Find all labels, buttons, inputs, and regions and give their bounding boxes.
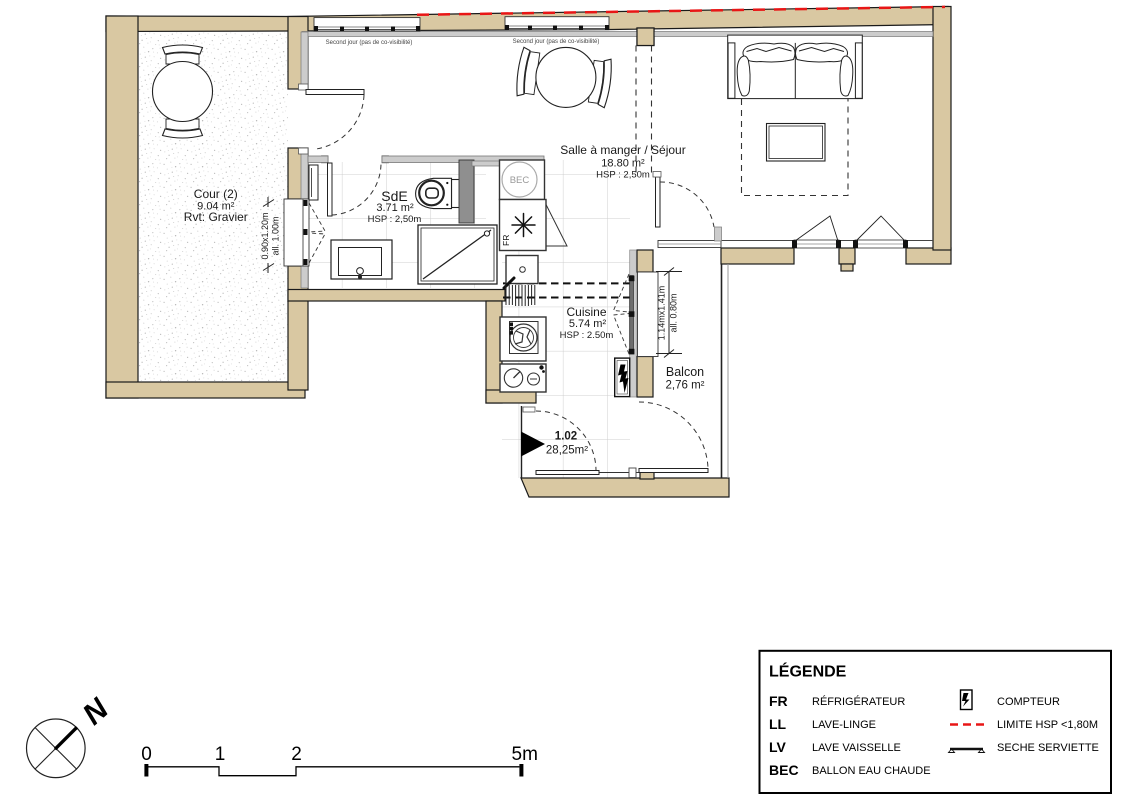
svg-text:Salle à manger / Séjour: Salle à manger / Séjour — [560, 143, 685, 157]
svg-text:HSP : 2,50m: HSP : 2,50m — [596, 169, 650, 180]
svg-text:5.74 m²: 5.74 m² — [569, 318, 607, 330]
svg-text:FR: FR — [501, 235, 511, 246]
svg-text:Balcon: Balcon — [666, 365, 704, 379]
svg-text:Rvt: Gravier: Rvt: Gravier — [184, 210, 248, 224]
svg-text:5m: 5m — [512, 744, 538, 765]
svg-text:1.14mx1.41m: 1.14mx1.41m — [657, 286, 667, 341]
svg-text:28,25m²: 28,25m² — [546, 444, 588, 456]
svg-text:0.90x1.20m: 0.90x1.20m — [260, 212, 270, 259]
svg-text:BALLON EAU CHAUDE: BALLON EAU CHAUDE — [812, 765, 931, 777]
svg-text:LL: LL — [769, 716, 787, 732]
svg-text:1: 1 — [215, 744, 226, 765]
svg-text:RÉFRIGÉRATEUR: RÉFRIGÉRATEUR — [812, 695, 905, 708]
svg-text:LAVE-LINGE: LAVE-LINGE — [812, 719, 876, 731]
svg-text:0: 0 — [141, 744, 152, 765]
svg-text:LIMITE HSP <1,80M: LIMITE HSP <1,80M — [997, 719, 1098, 731]
svg-text:HSP : 2,50m: HSP : 2,50m — [368, 214, 422, 225]
svg-text:HSP : 2.50m: HSP : 2.50m — [560, 330, 614, 341]
svg-text:LV: LV — [769, 739, 787, 755]
svg-text:LÉGENDE: LÉGENDE — [769, 662, 847, 681]
svg-text:1.02: 1.02 — [555, 431, 577, 443]
svg-text:BEC: BEC — [769, 762, 799, 778]
svg-text:18.80 m²: 18.80 m² — [601, 157, 645, 169]
svg-text:LAVE VAISSELLE: LAVE VAISSELLE — [812, 742, 901, 754]
svg-text:2: 2 — [291, 744, 302, 765]
svg-text:2,76 m²: 2,76 m² — [666, 380, 705, 392]
svg-text:Cour (2): Cour (2) — [194, 187, 238, 201]
svg-text:Cuisine: Cuisine — [566, 305, 606, 319]
svg-text:all. 0.80m: all. 0.80m — [669, 293, 679, 332]
svg-text:Second jour (pas de co-visibil: Second jour (pas de co-visibilité) — [513, 39, 600, 45]
svg-text:BEC: BEC — [510, 175, 530, 186]
svg-text:COMPTEUR: COMPTEUR — [997, 696, 1060, 708]
svg-text:all. 1.00m: all. 1.00m — [271, 216, 281, 255]
svg-text:3.71 m²: 3.71 m² — [376, 202, 414, 214]
svg-text:SECHE SERVIETTE: SECHE SERVIETTE — [997, 742, 1099, 754]
svg-text:Second jour (pas de co-visibil: Second jour (pas de co-visibilité) — [326, 40, 413, 46]
svg-text:FR: FR — [769, 693, 788, 709]
